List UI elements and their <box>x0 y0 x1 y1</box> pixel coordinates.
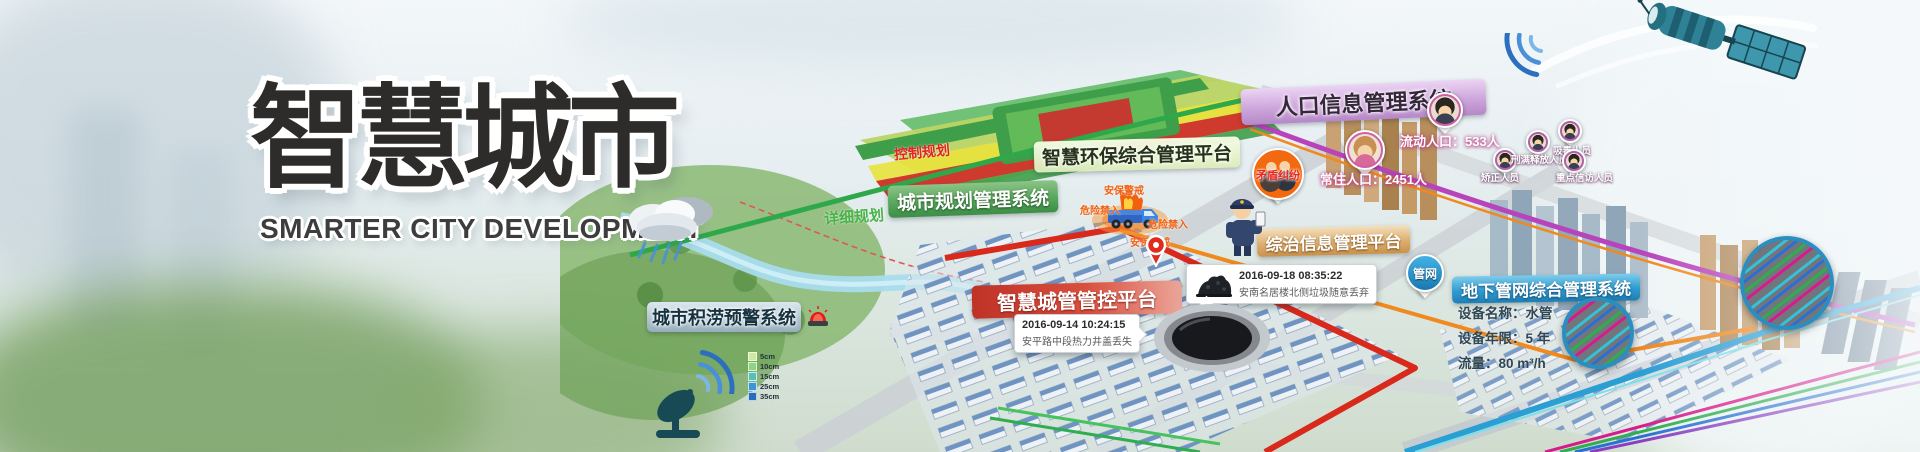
satellite-icon <box>1528 0 1818 94</box>
garbage-icon <box>1194 269 1234 299</box>
legend-label: 15cm <box>760 373 779 381</box>
alarm-icon <box>805 304 831 328</box>
petition-person-label: 重点信访人员 <box>1556 170 1613 184</box>
smart-city-banner: 智慧城市 SMARTER CITY DEVELOPMENT <box>0 0 1920 452</box>
pipe-inset-small-icon <box>1562 297 1634 369</box>
satellite-signal-icon <box>1497 33 1553 85</box>
man-avatar <box>1566 153 1582 169</box>
woman-avatar <box>1349 134 1381 166</box>
rain-cloud-icon <box>615 190 720 270</box>
legend-label: 35cm <box>760 393 779 401</box>
pipe-info-panel: 设备名称：水管 设备年限：5 年 流量：80 m³/h <box>1458 301 1553 376</box>
system-band-environment: 智慧环保综合管理平台 <box>1034 136 1241 172</box>
floating-population-pin <box>1427 92 1463 128</box>
manhole-event-desc: 安平路中段热力井盖丢失 <box>1022 333 1132 348</box>
police-officer-icon <box>1216 190 1268 260</box>
correction-person-label: 矫正人员 <box>1481 170 1519 184</box>
alert-pin-icon <box>1144 234 1168 268</box>
legend-swatch <box>748 372 757 381</box>
resident-population-label: 常住人口：2451人 <box>1320 169 1427 188</box>
pipe-age: 设备年限：5 年 <box>1458 326 1553 351</box>
resident-population-pin <box>1345 130 1385 170</box>
legend-swatch <box>748 362 757 371</box>
pipe-flow: 流量：80 m³/h <box>1458 351 1553 376</box>
legend-label: 10cm <box>760 363 779 371</box>
incident-label-danger-left: 危险禁入 <box>1080 202 1120 217</box>
legend-swatch <box>748 382 757 391</box>
released-person-pin <box>1526 130 1550 154</box>
man-avatar <box>1530 134 1546 150</box>
manhole-event-callout: 2016-09-14 10:24:15 安平路中段热力井盖丢失 <box>1014 314 1140 353</box>
drug-person-pin <box>1558 119 1582 143</box>
system-band-flood-warning: 城市积涝预警系统 <box>647 302 801 332</box>
legend-swatch <box>748 352 757 361</box>
pipe-name: 设备名称：水管 <box>1458 301 1553 326</box>
zone-label-detail-planning: 详细规划 <box>823 204 884 229</box>
legend-swatch <box>748 392 757 401</box>
dispute-pin: 矛盾纠纷 <box>1252 148 1304 200</box>
dispute-pin-label: 矛盾纠纷 <box>1256 167 1300 183</box>
floating-population-label: 流动人口：533人 <box>1400 131 1500 150</box>
system-band-urban-planning: 城市规划管理系统 <box>887 180 1058 218</box>
man-avatar <box>1562 123 1578 139</box>
system-band-governance: 综治信息管理平台 <box>1257 225 1411 257</box>
flood-depth-legend: 5cm 10cm 15cm 25cm 35cm <box>748 352 779 401</box>
pipe-inset-large-icon <box>1740 236 1834 330</box>
garbage-event-time: 2016-09-18 08:35:22 <box>1239 270 1369 282</box>
incident-label-danger-right: 危险禁入 <box>1148 216 1188 231</box>
man-avatar <box>1431 96 1459 124</box>
manhole-event-time: 2016-09-14 10:24:15 <box>1022 319 1132 331</box>
manhole-icon <box>1150 296 1274 380</box>
pipe-pin-label: 管网 <box>1413 265 1437 282</box>
banner-title: 智慧城市 <box>250 48 674 210</box>
legend-label: 25cm <box>760 383 779 391</box>
incident-label-security-top: 安保警戒 <box>1104 182 1144 197</box>
dish-signal-icon <box>686 342 742 394</box>
legend-label: 5cm <box>760 353 775 361</box>
pipe-network-pin: 管网 <box>1406 254 1444 292</box>
